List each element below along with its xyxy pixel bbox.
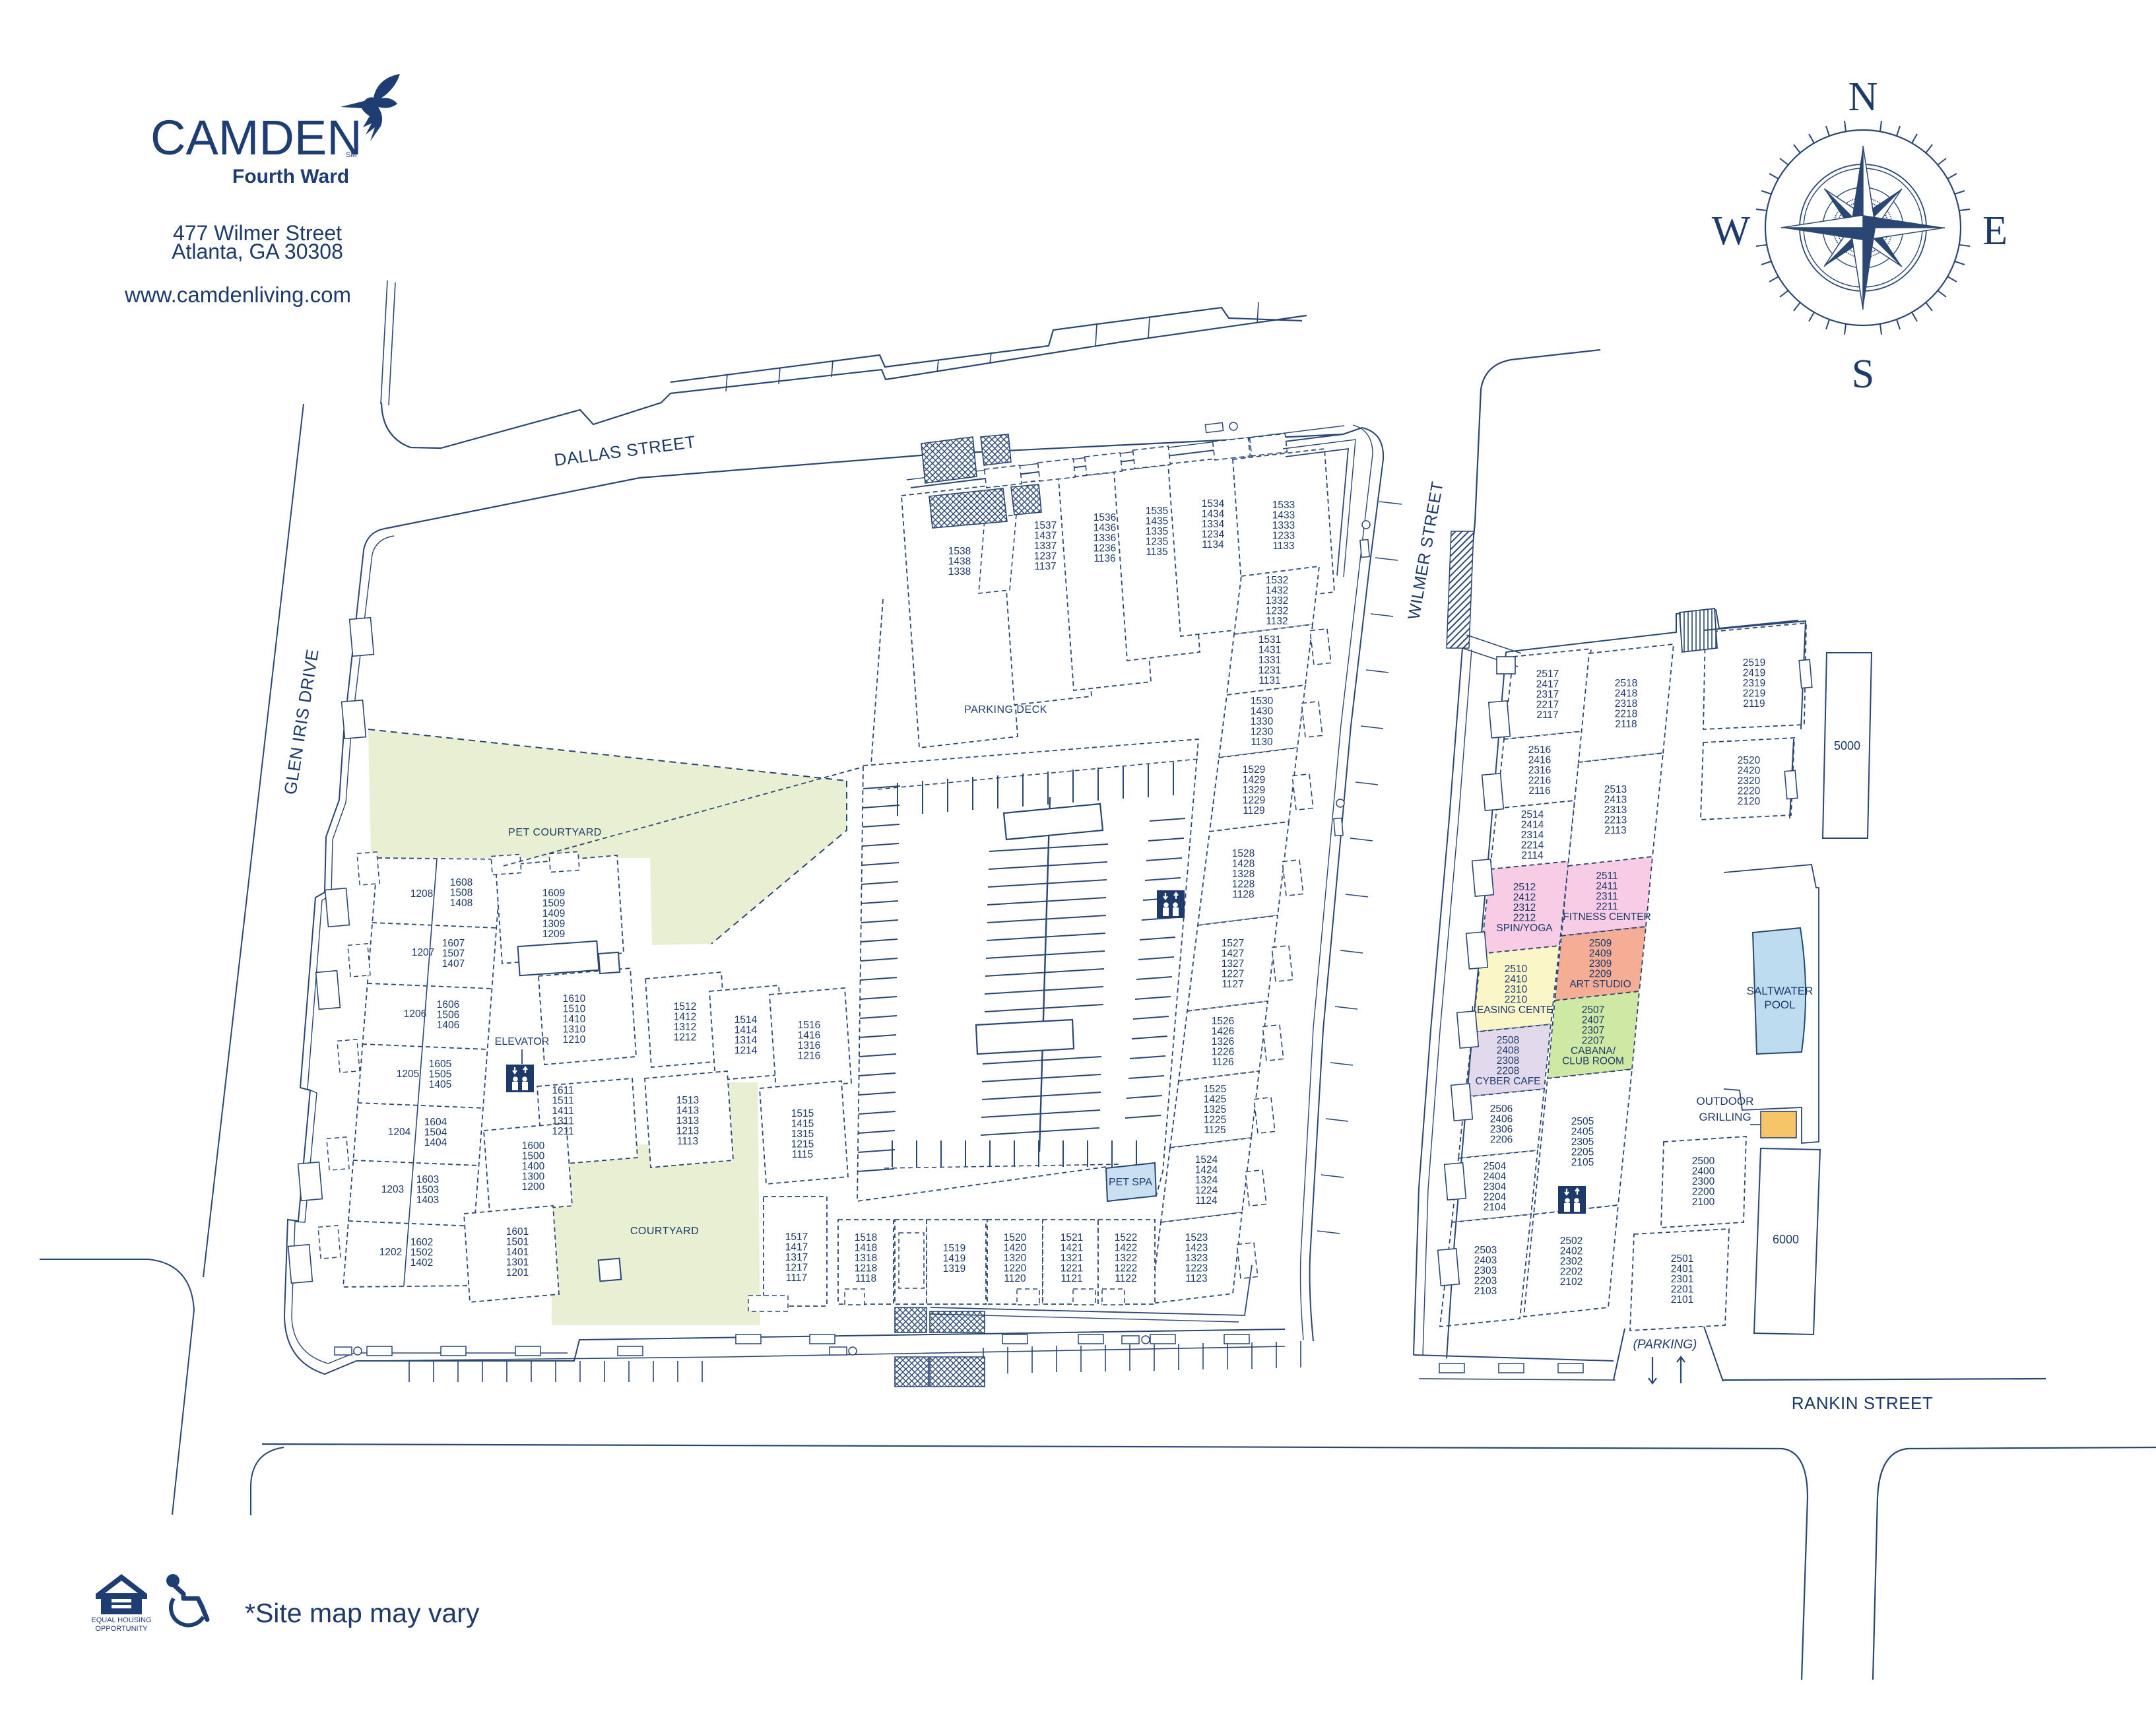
svg-text:16101510141013101210: 16101510141013101210 bbox=[563, 993, 586, 1045]
svg-text:1512141213121212: 1512141213121212 bbox=[674, 1001, 696, 1043]
svg-text:1207: 1207 bbox=[412, 947, 434, 958]
svg-text:W: W bbox=[1712, 209, 1751, 253]
svg-text:15241424132412241124: 15241424132412241124 bbox=[1195, 1154, 1218, 1206]
svg-text:25012401230122012101: 25012401230122012101 bbox=[1671, 1253, 1693, 1305]
svg-text:25032403230322032103: 25032403230322032103 bbox=[1474, 1245, 1497, 1297]
svg-text:15321432133212321132: 15321432133212321132 bbox=[1266, 575, 1288, 627]
svg-text:RANKIN STREET: RANKIN STREET bbox=[1792, 1393, 1934, 1413]
svg-text:CAMDEN: CAMDEN bbox=[150, 110, 362, 165]
svg-text:EQUAL HOUSING: EQUAL HOUSING bbox=[91, 1616, 151, 1624]
svg-text:1204: 1204 bbox=[388, 1127, 411, 1138]
svg-text:6000: 6000 bbox=[1773, 1233, 1799, 1246]
svg-text:E: E bbox=[1982, 209, 2008, 253]
svg-text:S: S bbox=[1852, 352, 1874, 397]
svg-text:15251425132512251125: 15251425132512251125 bbox=[1204, 1084, 1226, 1136]
svg-text:1206: 1206 bbox=[404, 1008, 426, 1020]
svg-text:SM: SM bbox=[346, 151, 357, 159]
svg-text:15181418131812181118: 15181418131812181118 bbox=[855, 1232, 877, 1284]
svg-text:*Site map may vary: *Site map may vary bbox=[245, 1598, 480, 1628]
svg-text:160615061406: 160615061406 bbox=[437, 999, 459, 1031]
svg-text:160415041404: 160415041404 bbox=[424, 1117, 447, 1148]
svg-text:25172417231722172117: 25172417231722172117 bbox=[1536, 669, 1559, 721]
svg-text:1208: 1208 bbox=[410, 888, 433, 900]
svg-text:N: N bbox=[1848, 75, 1878, 119]
svg-text:OPPORTUNITY: OPPORTUNITY bbox=[95, 1625, 148, 1633]
svg-text:15221422132212221122: 15221422132212221122 bbox=[1115, 1232, 1137, 1284]
svg-text:15291429132912291129: 15291429132912291129 bbox=[1243, 764, 1265, 816]
svg-text:160315031403: 160315031403 bbox=[416, 1174, 439, 1206]
svg-text:160215021402: 160215021402 bbox=[410, 1237, 433, 1268]
svg-text:15331433133312331133: 15331433133312331133 bbox=[1272, 500, 1295, 552]
svg-text:25052405230522052105: 25052405230522052105 bbox=[1571, 1116, 1594, 1168]
svg-text:1203: 1203 bbox=[381, 1184, 404, 1195]
svg-text:25022402230222022102: 25022402230222022102 bbox=[1560, 1235, 1583, 1288]
svg-text:PARKING DECK: PARKING DECK bbox=[964, 704, 1047, 715]
svg-text:15281428132812281128: 15281428132812281128 bbox=[1232, 848, 1255, 900]
svg-text:15131413131312131113: 15131413131312131113 bbox=[676, 1095, 699, 1147]
svg-text:160515051405: 160515051405 bbox=[429, 1059, 451, 1090]
svg-text:25162416231622162116: 25162416231622162116 bbox=[1528, 744, 1551, 797]
svg-text:5000: 5000 bbox=[1834, 739, 1860, 752]
svg-text:15311431133112311131: 15311431133112311131 bbox=[1258, 634, 1281, 686]
svg-text:15151415131512151115: 15151415131512151115 bbox=[791, 1108, 814, 1160]
svg-text:PET SPA: PET SPA bbox=[1109, 1177, 1152, 1188]
svg-text:16091509140913091209: 16091509140913091209 bbox=[542, 888, 565, 940]
svg-text:15271427132712271127: 15271427132712271127 bbox=[1222, 938, 1244, 990]
svg-text:15341434133412341134: 15341434133412341134 bbox=[1202, 498, 1225, 550]
svg-text:15261426132612261126: 15261426132612261126 bbox=[1212, 1016, 1234, 1068]
svg-text:25132413231322132113: 25132413231322132113 bbox=[1604, 784, 1627, 836]
svg-text:1516141613161216: 1516141613161216 bbox=[798, 1020, 820, 1062]
svg-text:PET COURTYARD: PET COURTYARD bbox=[508, 827, 602, 838]
svg-text:15171417131712171117: 15171417131712171117 bbox=[785, 1232, 808, 1284]
svg-text:15351435133512351135: 15351435133512351135 bbox=[1146, 506, 1168, 558]
svg-text:(PARKING): (PARKING) bbox=[1633, 1338, 1697, 1352]
svg-text:ELEVATOR: ELEVATOR bbox=[495, 1036, 550, 1047]
svg-text:COURTYARD: COURTYARD bbox=[630, 1226, 699, 1237]
svg-text:25002400230022002100: 25002400230022002100 bbox=[1692, 1156, 1715, 1208]
svg-text:15231423132312231123: 15231423132312231123 bbox=[1185, 1232, 1208, 1284]
svg-text:25182418231822182118: 25182418231822182118 bbox=[1615, 678, 1637, 730]
svg-text:477 Wilmer StreetAtlanta, GA 3: 477 Wilmer StreetAtlanta, GA 30308 bbox=[172, 221, 343, 263]
svg-text:16001500140013001200: 16001500140013001200 bbox=[522, 1140, 545, 1193]
svg-text:15361436133612361136: 15361436133612361136 bbox=[1094, 512, 1116, 564]
svg-text:25192419231922192119: 25192419231922192119 bbox=[1743, 657, 1765, 709]
svg-text:16111511141113111211: 16111511141113111211 bbox=[552, 1085, 573, 1137]
svg-text:160815081408: 160815081408 bbox=[450, 877, 473, 909]
svg-text:Fourth Ward: Fourth Ward bbox=[232, 166, 349, 187]
svg-text:15301430133012301130: 15301430133012301130 bbox=[1251, 696, 1274, 748]
svg-text:2506240623062206: 2506240623062206 bbox=[1490, 1103, 1513, 1146]
svg-text:16011501140113011201: 16011501140113011201 bbox=[506, 1226, 529, 1278]
svg-text:www.camdenliving.com: www.camdenliving.com bbox=[124, 282, 351, 307]
svg-text:15371437133712371137: 15371437133712371137 bbox=[1034, 520, 1057, 572]
svg-text:160715071407: 160715071407 bbox=[442, 938, 465, 970]
svg-text:1514141413141214: 1514141413141214 bbox=[735, 1014, 758, 1057]
svg-text:25142414231422142114: 25142414231422142114 bbox=[1521, 809, 1544, 861]
svg-text:15211421132112211121: 15211421132112211121 bbox=[1061, 1232, 1083, 1284]
svg-text:25202420232022202120: 25202420232022202120 bbox=[1738, 755, 1761, 807]
svg-text:25042404230422042104: 25042404230422042104 bbox=[1484, 1161, 1507, 1213]
svg-text:151914191319: 151914191319 bbox=[943, 1243, 965, 1274]
svg-text:153814381338: 153814381338 bbox=[948, 546, 971, 577]
svg-text:1202: 1202 bbox=[379, 1247, 402, 1258]
svg-text:15201420132012201120: 15201420132012201120 bbox=[1004, 1232, 1027, 1284]
svg-text:1205: 1205 bbox=[397, 1069, 419, 1080]
